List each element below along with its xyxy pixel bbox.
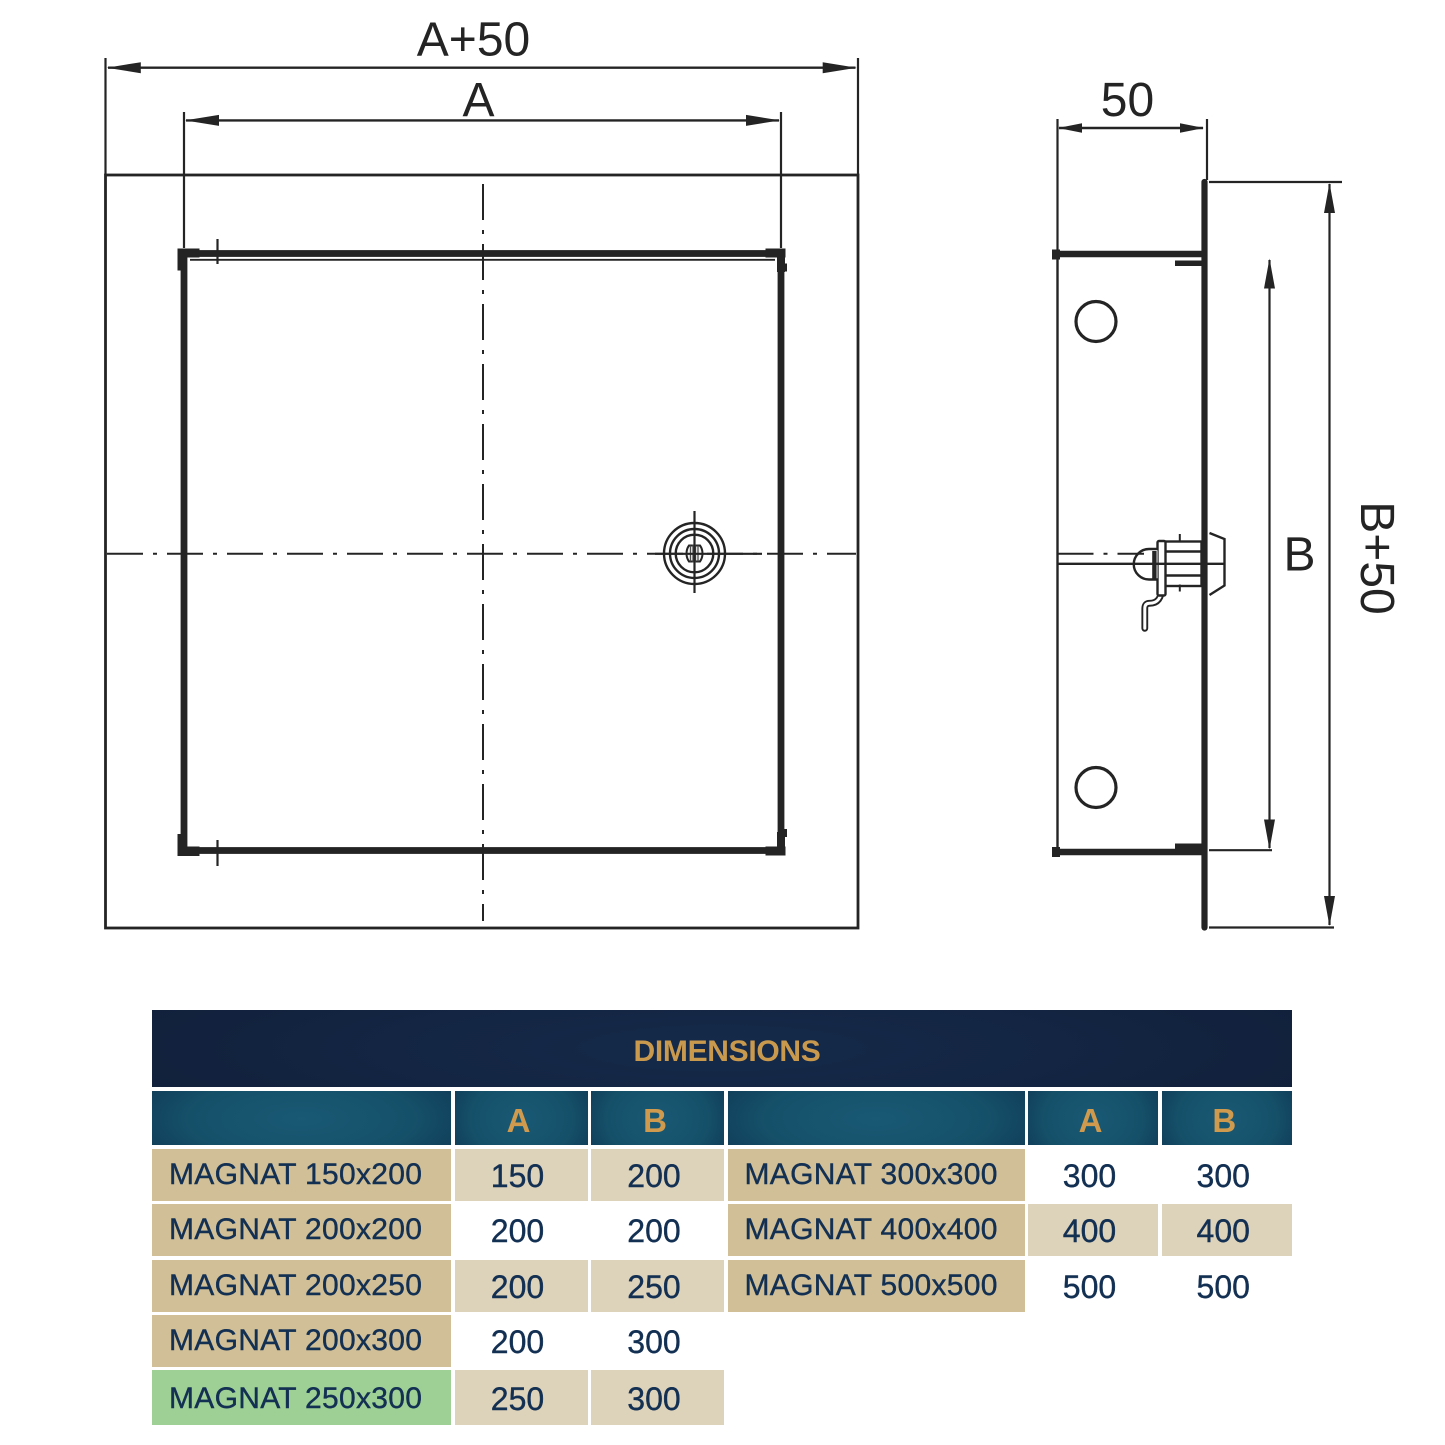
svg-text:50: 50 — [1101, 74, 1154, 127]
svg-text:B: B — [1283, 529, 1315, 582]
svg-text:A+50: A+50 — [417, 14, 530, 67]
svg-text:B+50: B+50 — [1350, 501, 1403, 614]
svg-text:A: A — [462, 74, 494, 127]
